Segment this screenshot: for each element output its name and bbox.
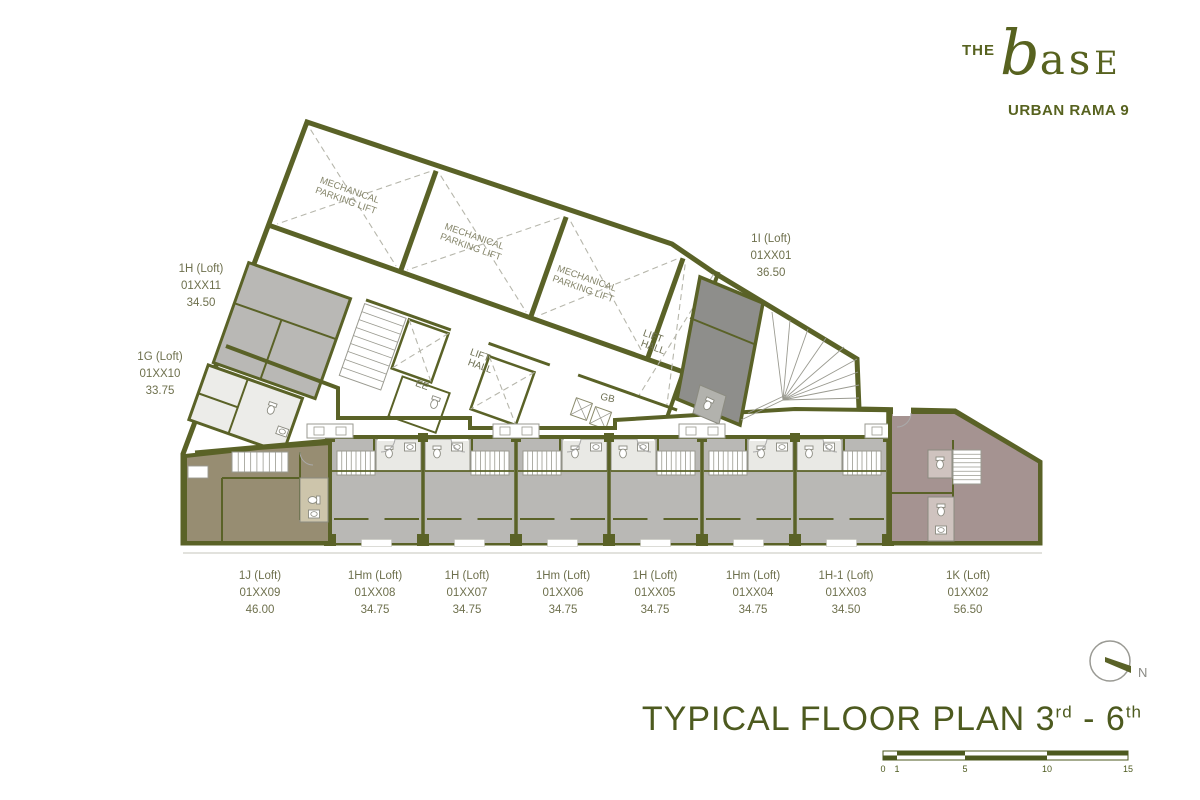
unit-01XX08 (330, 432, 423, 547)
label-01XX02: 1K (Loft)01XX0256.50 (946, 570, 990, 616)
scale-bar: 0151015 (880, 751, 1133, 774)
page: MECHANICALPARKING LIFTMECHANICALPARKING … (0, 0, 1200, 800)
svg-text:1Hm (Loft): 1Hm (Loft) (348, 570, 402, 582)
label-01XX06: 1Hm (Loft)01XX0634.75 (536, 570, 590, 616)
svg-text:1I (Loft): 1I (Loft) (751, 233, 791, 245)
toilet-icon (936, 457, 944, 469)
logo-word: basE (1000, 16, 1120, 89)
svg-text:36.50: 36.50 (757, 267, 786, 279)
svg-text:34.75: 34.75 (739, 604, 768, 616)
logo-subtitle: URBAN RAMA 9 (1008, 102, 1129, 119)
svg-text:10: 10 (1042, 764, 1052, 774)
svg-text:1H (Loft): 1H (Loft) (179, 263, 224, 275)
svg-text:01XX05: 01XX05 (635, 587, 676, 599)
toilet-icon (571, 446, 579, 458)
unit-01XX03 (795, 432, 888, 547)
label-01XX08: 1Hm (Loft)01XX0834.75 (348, 570, 402, 616)
svg-text:01XX06: 01XX06 (543, 587, 584, 599)
stair-hatch (232, 452, 288, 472)
toilet-icon (433, 446, 441, 458)
unit-01XX04 (702, 432, 795, 547)
ac-ledge (493, 424, 539, 438)
unit-01XX09 (185, 443, 330, 543)
sink-icon (309, 510, 320, 518)
label-01XX11: 1H (Loft)01XX1134.50 (179, 263, 224, 309)
toilet-icon (308, 496, 320, 504)
svg-text:46.00: 46.00 (246, 604, 275, 616)
svg-text:01XX03: 01XX03 (826, 587, 867, 599)
logo-the: THE (962, 42, 995, 59)
svg-text:34.75: 34.75 (549, 604, 578, 616)
svg-text:01XX11: 01XX11 (181, 280, 221, 292)
svg-text:01XX09: 01XX09 (240, 587, 281, 599)
label-01XX01: 1I (Loft)01XX0136.50 (751, 233, 792, 279)
stair-hatch (953, 450, 981, 484)
toilet-icon (937, 504, 945, 516)
svg-text:01XX08: 01XX08 (355, 587, 396, 599)
north-arrow: N (1090, 641, 1147, 681)
svg-text:1H-1 (Loft): 1H-1 (Loft) (819, 570, 874, 582)
unit-01XX05 (609, 432, 702, 547)
label-01XX10: 1G (Loft)01XX1033.75 (137, 351, 183, 397)
svg-text:1G (Loft): 1G (Loft) (137, 351, 183, 363)
svg-text:56.50: 56.50 (954, 604, 983, 616)
toilet-icon (757, 446, 765, 458)
svg-text:01XX04: 01XX04 (733, 587, 775, 599)
svg-text:01XX07: 01XX07 (447, 587, 488, 599)
ac-ledge (307, 424, 353, 438)
ac-ledge (679, 424, 725, 438)
unit-01XX02 (890, 407, 1040, 543)
label-01XX07: 1H (Loft)01XX0734.75 (445, 570, 490, 616)
unit-01XX07 (423, 432, 516, 547)
toilet-icon (619, 446, 627, 458)
label-01XX09: 1J (Loft)01XX0946.00 (239, 570, 281, 616)
sink-icon (936, 526, 947, 534)
svg-text:01XX10: 01XX10 (140, 368, 181, 380)
svg-text:34.50: 34.50 (832, 604, 861, 616)
svg-text:33.75: 33.75 (146, 385, 175, 397)
sink-icon (591, 443, 602, 451)
svg-text:1K (Loft): 1K (Loft) (946, 570, 990, 582)
toilet-icon (385, 446, 393, 458)
sink-icon (405, 443, 416, 451)
label-01XX04: 1Hm (Loft)01XX0434.75 (726, 570, 780, 616)
svg-text:0: 0 (880, 764, 885, 774)
svg-text:01XX01: 01XX01 (751, 250, 792, 262)
svg-text:34.75: 34.75 (453, 604, 482, 616)
svg-text:34.75: 34.75 (361, 604, 390, 616)
svg-text:01XX02: 01XX02 (948, 587, 989, 599)
svg-text:1Hm (Loft): 1Hm (Loft) (536, 570, 590, 582)
unit-01XX06 (516, 432, 609, 547)
toilet-icon (805, 446, 813, 458)
label-01XX05: 1H (Loft)01XX0534.75 (633, 570, 678, 616)
floor-plan-canvas: MECHANICALPARKING LIFTMECHANICALPARKING … (0, 0, 1200, 800)
svg-text:N: N (1138, 665, 1147, 680)
svg-text:34.75: 34.75 (641, 604, 670, 616)
svg-text:1Hm (Loft): 1Hm (Loft) (726, 570, 780, 582)
plan-title: TYPICAL FLOOR PLAN 3rd - 6th (0, 700, 1142, 739)
svg-text:15: 15 (1123, 764, 1133, 774)
floor-plan: MECHANICALPARKING LIFTMECHANICALPARKING … (137, 121, 1147, 774)
svg-text:1H (Loft): 1H (Loft) (445, 570, 490, 582)
svg-text:1J (Loft): 1J (Loft) (239, 570, 281, 582)
sink-icon (777, 443, 788, 451)
svg-text:1H (Loft): 1H (Loft) (633, 570, 678, 582)
svg-text:1: 1 (894, 764, 899, 774)
label-01XX03: 1H-1 (Loft)01XX0334.50 (819, 570, 874, 616)
svg-text:34.50: 34.50 (187, 297, 216, 309)
svg-text:5: 5 (962, 764, 967, 774)
